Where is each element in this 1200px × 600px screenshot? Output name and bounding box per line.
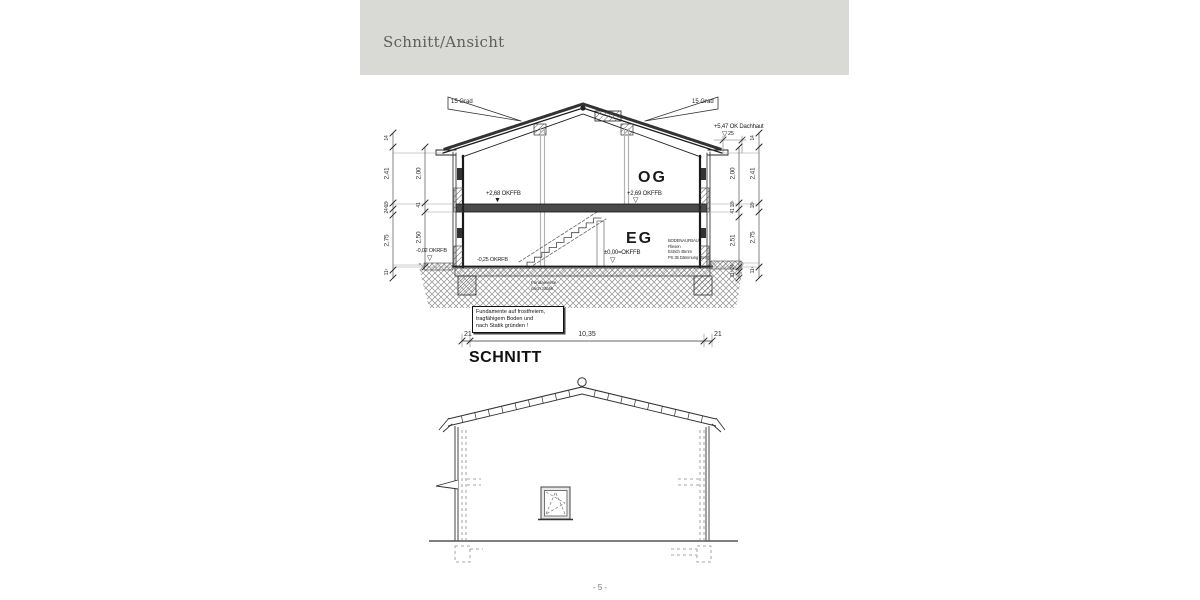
dim-label-bottom: 21 xyxy=(714,331,722,338)
ground-note-line: Fundamente xyxy=(531,280,556,286)
overflow-spout xyxy=(436,480,458,489)
elevation-downpipes xyxy=(455,430,711,562)
drawing-canvas xyxy=(0,0,1200,600)
level-rfb-eg: -0,25 OKRFB xyxy=(477,257,508,263)
elevation-roof xyxy=(439,387,725,432)
staircase xyxy=(519,212,606,268)
level-eg: ±0,00=OKFFB xyxy=(604,250,640,256)
level-marker-filled-icon: ▼ xyxy=(494,197,501,204)
ground-note: Fundamente nach Statik xyxy=(531,280,556,291)
wall-left xyxy=(453,152,463,268)
elevation-drawing xyxy=(429,378,738,562)
dim-label: 11⁹ xyxy=(384,250,390,294)
eaves-dim-label: 25 xyxy=(728,131,734,137)
level-marker-open-icon: ▽ xyxy=(722,131,727,138)
level-marker-open-icon: ▽ xyxy=(633,197,638,204)
foundation-note-box: Fundamente auf frostfreiem, tragfähigem … xyxy=(472,306,564,333)
dim-label: 11⁹ xyxy=(750,248,756,292)
room-label-og: OG xyxy=(638,169,667,187)
note-line: tragfähigem Boden und xyxy=(476,316,560,323)
og-floor-slab xyxy=(456,204,707,212)
purlin-right xyxy=(621,124,633,135)
ridge-level-label: +5,47 OK Dachhaut xyxy=(714,124,763,130)
gutter-right xyxy=(708,150,728,155)
dim-label: 11⁵ xyxy=(730,252,736,296)
ground-note-line: nach Statik xyxy=(531,286,556,292)
note-line: nach Statik gründen ! xyxy=(476,323,560,330)
interior-walls-eg xyxy=(541,212,605,267)
ridge-vent xyxy=(578,378,586,386)
level-og-left: +2,68 OKFFB xyxy=(486,191,521,197)
level-marker-open-icon: ▽ xyxy=(427,255,432,262)
room-label-eg: EG xyxy=(626,230,653,248)
dim-label-bottom: 10,35 xyxy=(557,331,617,338)
floor-buildup-line: PS 35 Dämmung 35mm xyxy=(668,255,710,261)
slope-label-left: 15 Grad xyxy=(451,99,473,105)
elevation-walls xyxy=(455,426,709,541)
section-title: SCHNITT xyxy=(469,349,542,367)
ridge-purlin xyxy=(595,111,621,121)
page-number: - 5 - xyxy=(570,583,630,592)
slope-label-right: 15 Grad xyxy=(692,99,714,105)
level-marker-open-icon: ▽ xyxy=(610,257,615,264)
eg-floor-slab xyxy=(424,261,741,276)
elevation-window xyxy=(538,487,573,520)
section-drawing xyxy=(390,97,762,347)
interior-walls-og xyxy=(541,128,629,204)
document-page: Schnitt/Ansicht xyxy=(0,0,1200,600)
dim-label: 2,50 xyxy=(416,216,423,260)
ridge-cap xyxy=(580,105,585,110)
note-line: Fundamente auf frostfreiem, xyxy=(476,309,560,316)
floor-buildup-note: BODENAUFBAU Fliesen Estrich 45mm PS 35 D… xyxy=(668,238,710,260)
roof-section xyxy=(443,104,722,157)
dim-label-bottom: 21 xyxy=(464,331,472,338)
